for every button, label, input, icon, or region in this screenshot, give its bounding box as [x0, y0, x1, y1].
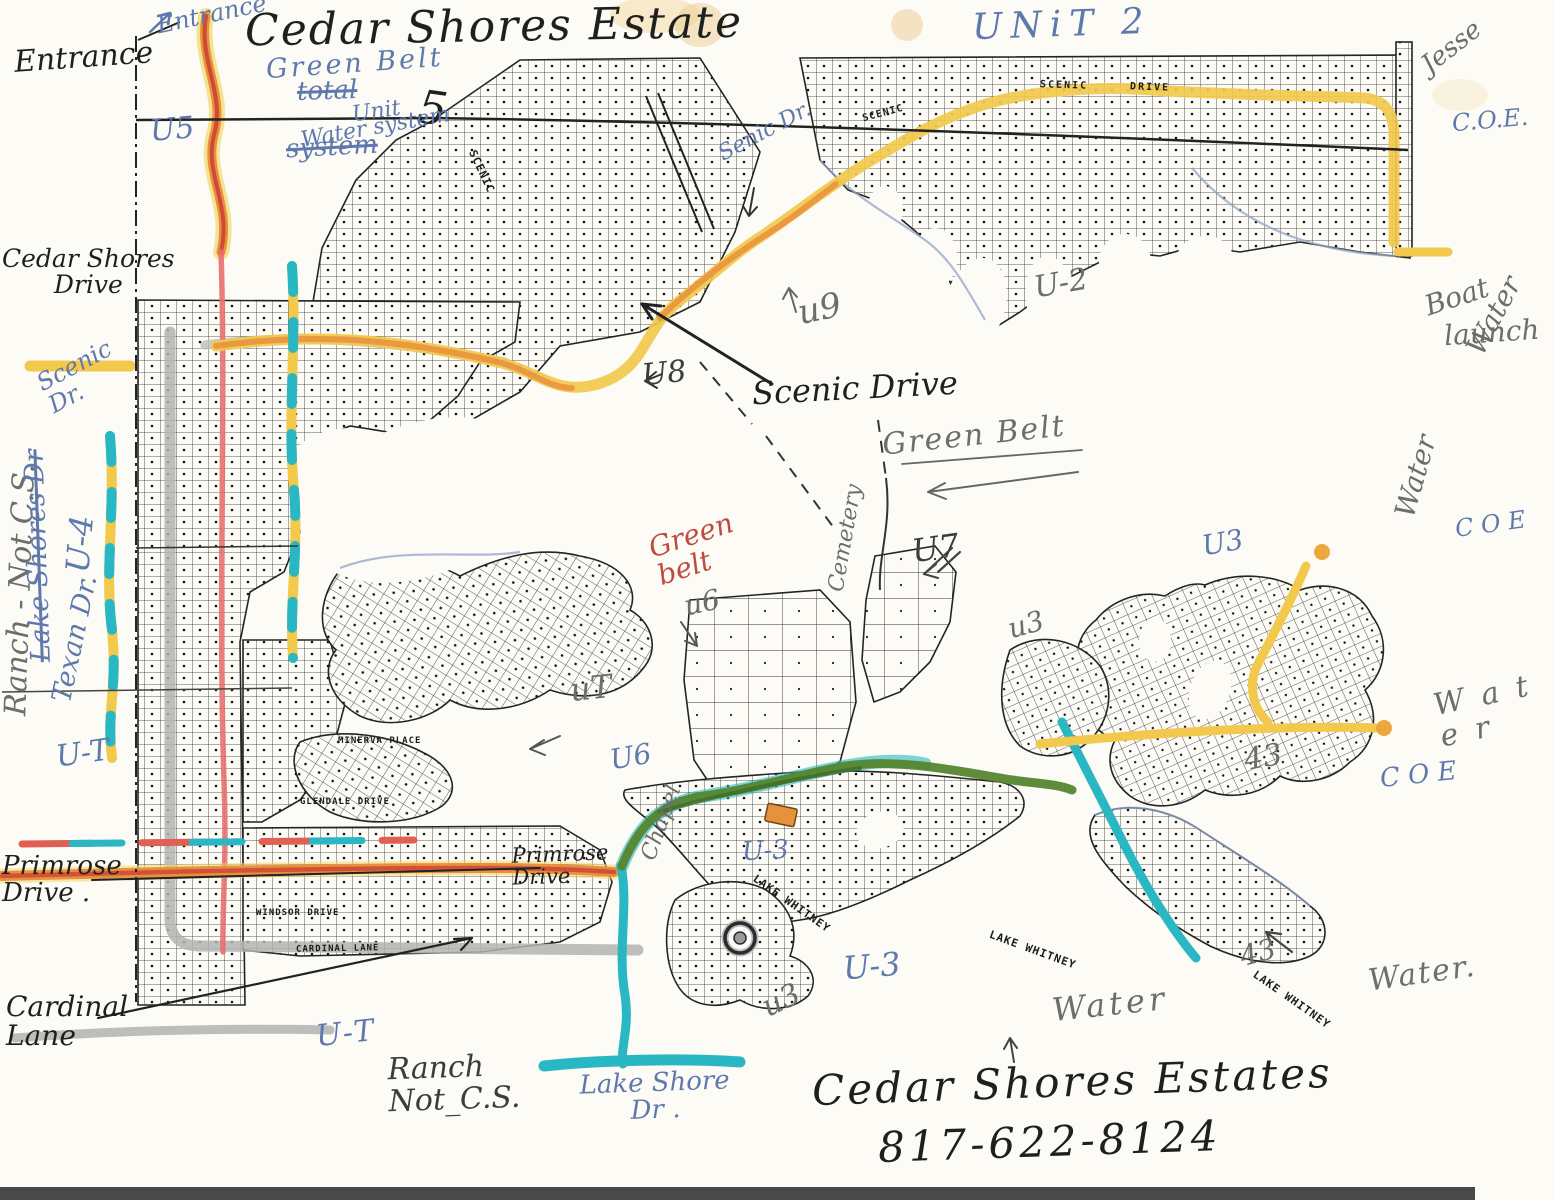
roundabout	[725, 923, 755, 953]
scenic-pointer-arrow	[642, 304, 772, 384]
orange-dot-top	[1314, 544, 1330, 560]
orange-dot-end	[1376, 720, 1392, 736]
u8-arrow	[645, 372, 662, 388]
plat-map-drawing	[0, 0, 1553, 1200]
entrance-blue-arrow	[150, 13, 170, 32]
stripe-cyan	[22, 840, 414, 844]
plat-region-unit3-strip	[1090, 808, 1325, 963]
dash-road-left-yellow	[109, 436, 114, 758]
lakeshore-cyan-vertical	[621, 866, 626, 1064]
cemetery-road-dashed	[878, 420, 886, 478]
arrow-up-island	[1004, 1038, 1017, 1062]
dash-road-mid-teal	[291, 266, 295, 658]
u9-arrow	[783, 288, 797, 312]
plat-region-left-lower	[243, 826, 612, 956]
dashed-diag-1	[766, 436, 834, 528]
scanned-plat-map: Entrance Entrance Cedar Shores Estate UN…	[0, 0, 1553, 1200]
greenbelt-underline	[902, 450, 1082, 464]
scan-bottom-bar	[0, 1187, 1475, 1200]
gray-swoosh-cardinal	[15, 1029, 330, 1038]
lakeshore-cyan-stroke	[544, 1060, 740, 1066]
boundary-top	[136, 118, 432, 120]
ut-arrow	[530, 736, 560, 755]
plat-region-peninsula-2	[294, 734, 452, 822]
dashed-diag-2	[700, 362, 752, 424]
greenbelt-arrow	[928, 472, 1078, 499]
